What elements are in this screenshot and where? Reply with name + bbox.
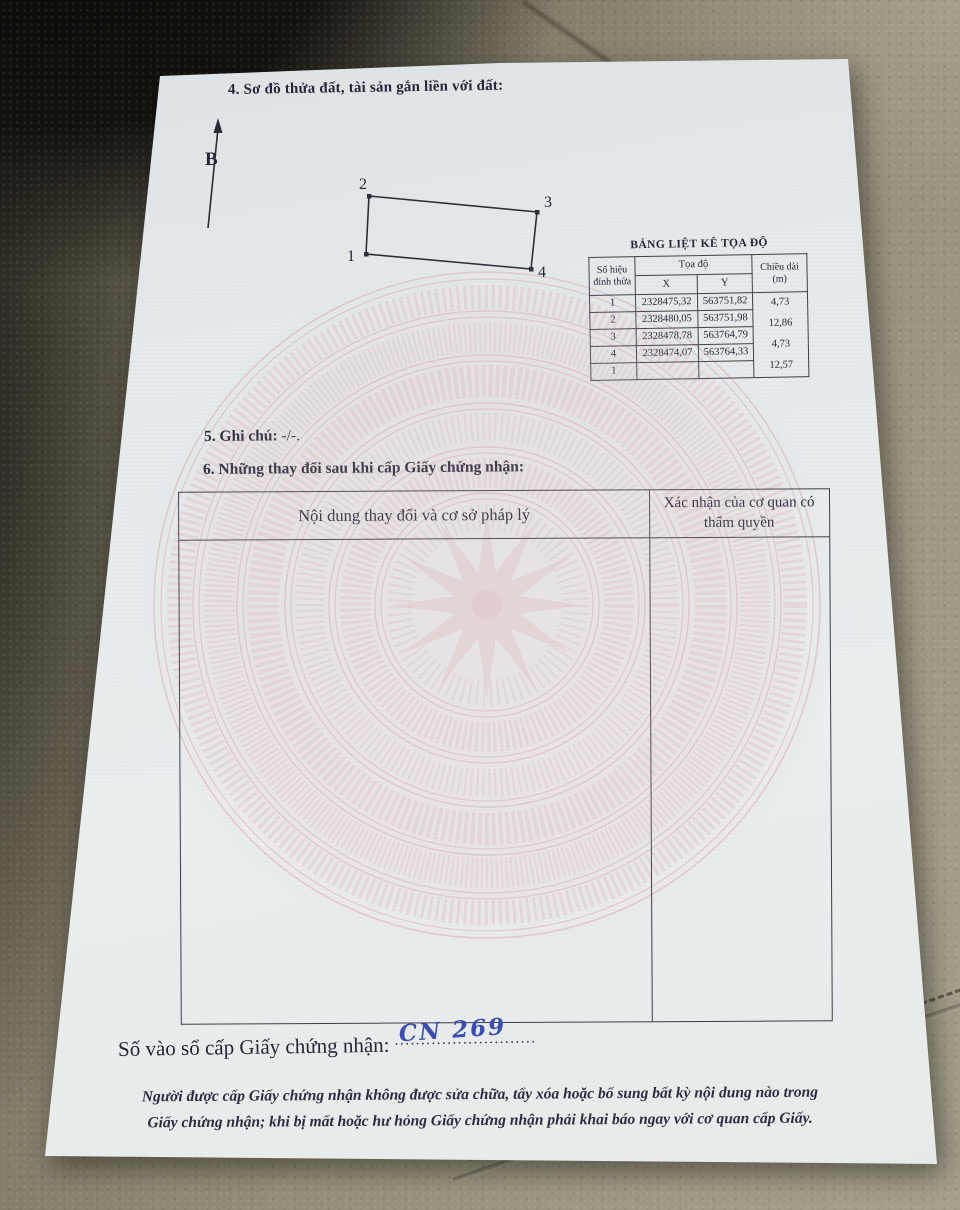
- col-header-x: X: [635, 275, 697, 295]
- drum-star: [392, 510, 582, 700]
- table-row: 3 2328478,78 563764,79: [590, 326, 808, 347]
- table-row: 4 2328474,07 563764,33: [590, 343, 808, 364]
- changes-table: Nội dung thay đổi và cơ sở pháp lý Xác n…: [178, 488, 833, 1024]
- coord-x: 2328478,78: [636, 328, 698, 346]
- col-header-length: Chiều dài (m): [752, 254, 808, 293]
- table-row: 2 2328480,05 563751,98: [590, 309, 808, 330]
- section4-heading: 4. Sơ đồ thửa đất, tài sản gắn liền với …: [228, 78, 504, 99]
- coord-y: [699, 361, 754, 379]
- registry-label: Số vào sổ cấp Giấy chứng nhận:: [118, 1033, 390, 1061]
- vertex-id: 2: [590, 312, 636, 330]
- length-cell: 4,73 12,86 4,73 12,57: [752, 292, 808, 378]
- footer-line-1: Người được cấp Giấy chứng nhận không đượ…: [94, 1079, 866, 1110]
- dong-son-drum-watermark-icon: [137, 255, 837, 955]
- footer-warning: Người được cấp Giấy chứng nhận không đượ…: [94, 1079, 866, 1136]
- section5-label: 5. Ghi chú:: [204, 427, 278, 445]
- length-value: 12,57: [755, 360, 807, 373]
- table-row: 1 2328475,32 563751,82 4,73 12,86 4,73 1…: [589, 292, 807, 313]
- vertex-label-1: 1: [347, 248, 355, 265]
- vertex-id: 1: [589, 295, 635, 313]
- changes-col-right-header: Xác nhận của cơ quan có thẩm quyền: [650, 489, 828, 537]
- north-label: B: [205, 149, 218, 170]
- coord-y: 563764,79: [698, 327, 753, 345]
- parcel-diagram: 1 2 3 4: [338, 174, 578, 289]
- coordinate-table-block: BẢNG LIỆT KÊ TỌA ĐỘ Số hiệu đỉnh thửa Tọ…: [588, 236, 812, 381]
- coord-y: 563764,33: [698, 344, 753, 362]
- footer-line-2: Giấy chứng nhận; khi bị mất hoặc hư hỏng…: [94, 1105, 866, 1136]
- vertex-id: 4: [590, 346, 636, 364]
- coord-x: [637, 362, 699, 380]
- handwritten-registry-number: CN 269: [398, 1013, 507, 1047]
- coordinate-table: Số hiệu đỉnh thửa Tọa độ Chiều dài (m) X…: [588, 253, 809, 381]
- vertex-id: 1: [591, 363, 637, 381]
- coord-x: 2328474,07: [636, 345, 698, 363]
- length-value: 12,86: [754, 318, 806, 331]
- coord-y: 563751,98: [698, 310, 753, 328]
- section6-heading: 6. Những thay đổi sau khi cấp Giấy chứng…: [203, 458, 524, 479]
- dotted-leader: ...........................: [395, 1030, 537, 1049]
- changes-table-divider: [649, 490, 653, 1021]
- changes-table-header-rule: [179, 536, 829, 540]
- length-value: 4,73: [754, 297, 806, 310]
- col-header-vertex: Số hiệu đỉnh thửa: [589, 257, 636, 296]
- registry-fill: ........................... CN 269: [394, 1022, 599, 1051]
- changes-col-left-header: Nội dung thay đổi và cơ sở pháp lý: [179, 490, 649, 539]
- length-value: 4,73: [755, 339, 807, 352]
- certificate-page: 4. Sơ đồ thửa đất, tài sản gắn liền với …: [0, 0, 960, 1210]
- coord-y: 563751,82: [697, 293, 752, 311]
- vertex-label-2: 2: [359, 176, 367, 193]
- north-arrow-icon: B: [185, 112, 245, 282]
- vertex-label-4: 4: [538, 264, 546, 281]
- col-header-coords: Tọa độ: [635, 255, 752, 276]
- coordinate-table-title: BẢNG LIỆT KÊ TỌA ĐỘ: [588, 236, 810, 252]
- registry-number-line: Số vào sổ cấp Giấy chứng nhận: .........…: [118, 1022, 600, 1062]
- section5-note: 5. Ghi chú: -/-.: [204, 427, 300, 446]
- vertex-id: 3: [590, 329, 636, 347]
- coord-x: 2328480,05: [636, 311, 698, 329]
- table-row: 1: [591, 360, 809, 381]
- photo-of-certificate-page: 4. Sơ đồ thửa đất, tài sản gắn liền với …: [0, 0, 960, 1210]
- section5-value: -/-.: [281, 427, 300, 444]
- document-page-wrapper: 4. Sơ đồ thửa đất, tài sản gắn liền với …: [0, 0, 960, 1210]
- coord-x: 2328475,32: [635, 294, 697, 312]
- vertex-label-3: 3: [544, 194, 552, 211]
- col-header-y: Y: [697, 274, 752, 294]
